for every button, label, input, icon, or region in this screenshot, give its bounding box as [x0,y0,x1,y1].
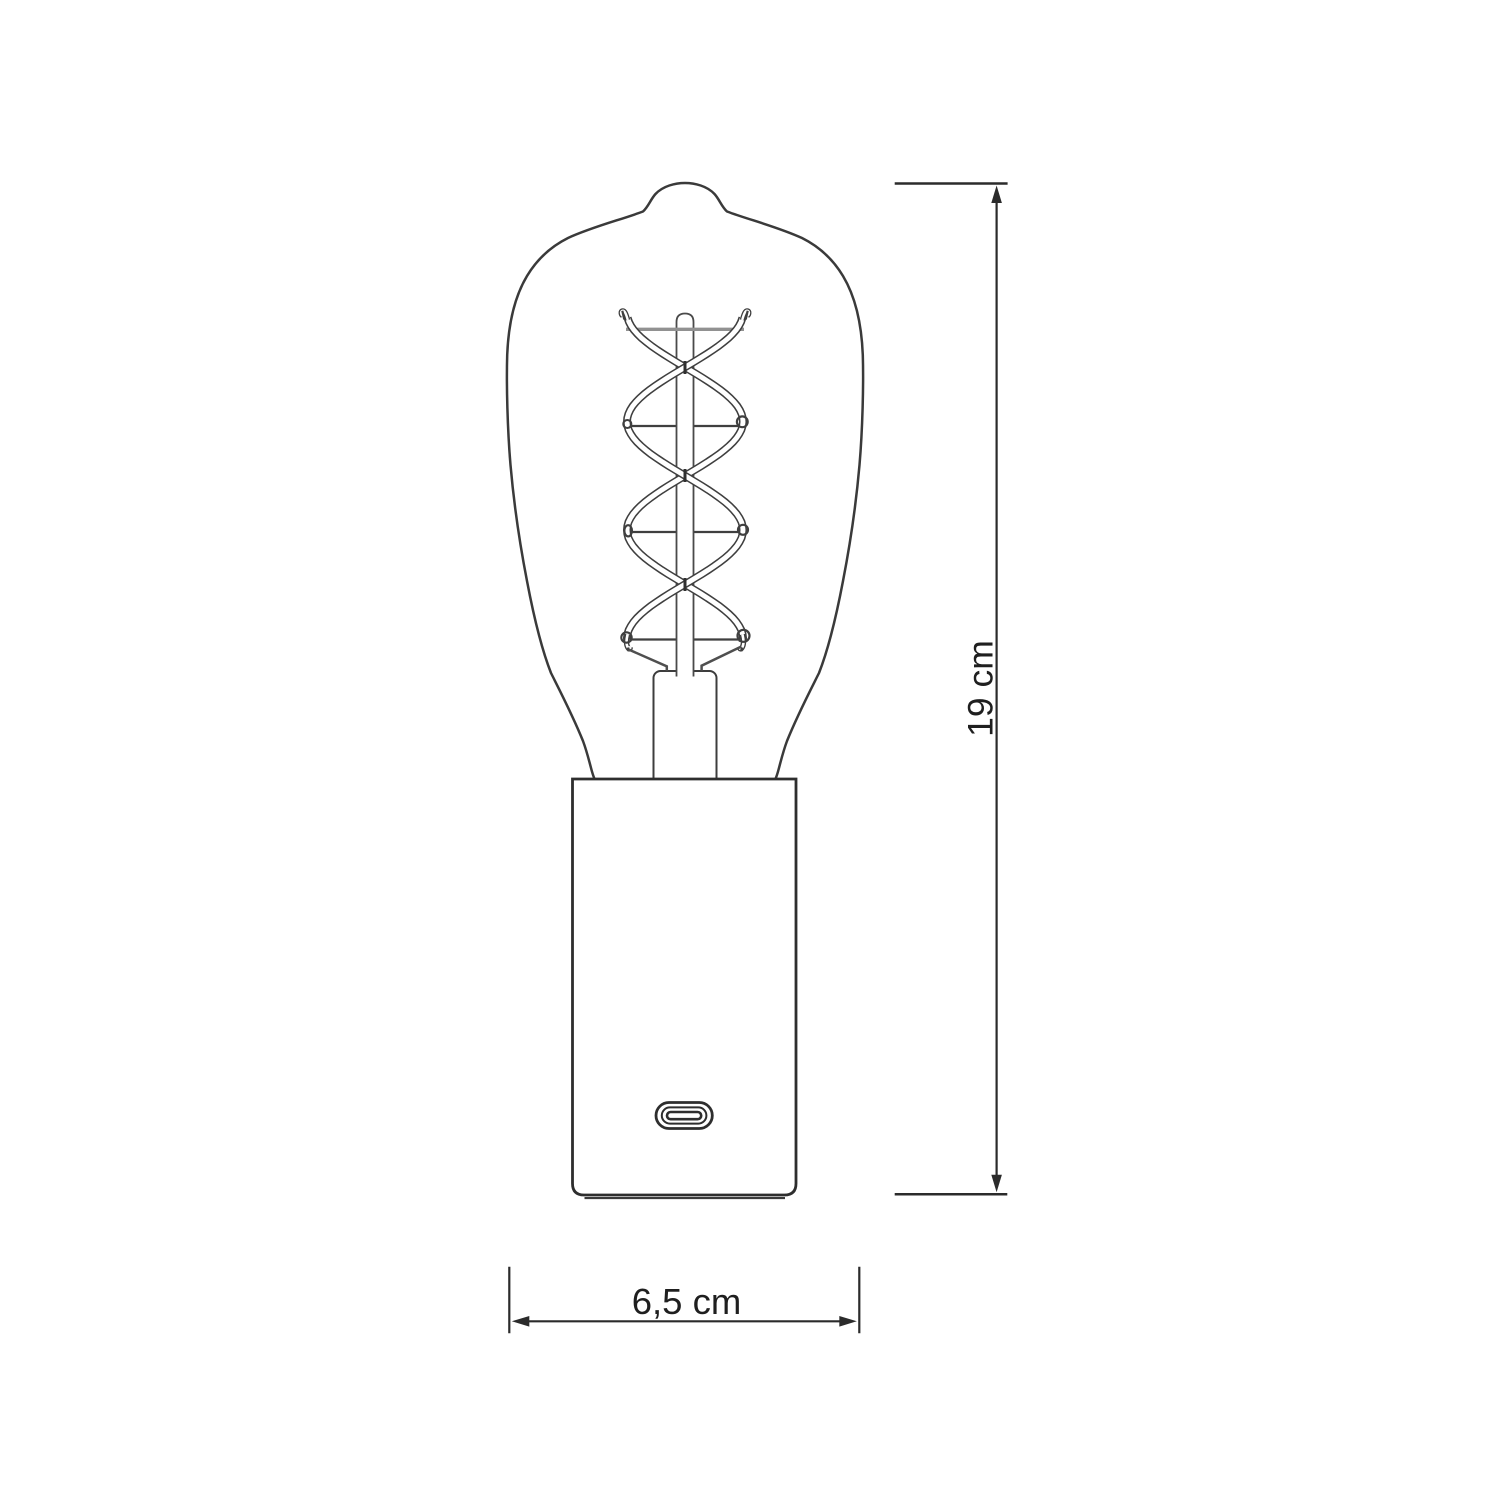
svg-text:6,5 cm: 6,5 cm [632,1281,742,1322]
svg-text:19 cm: 19 cm [961,640,1001,737]
